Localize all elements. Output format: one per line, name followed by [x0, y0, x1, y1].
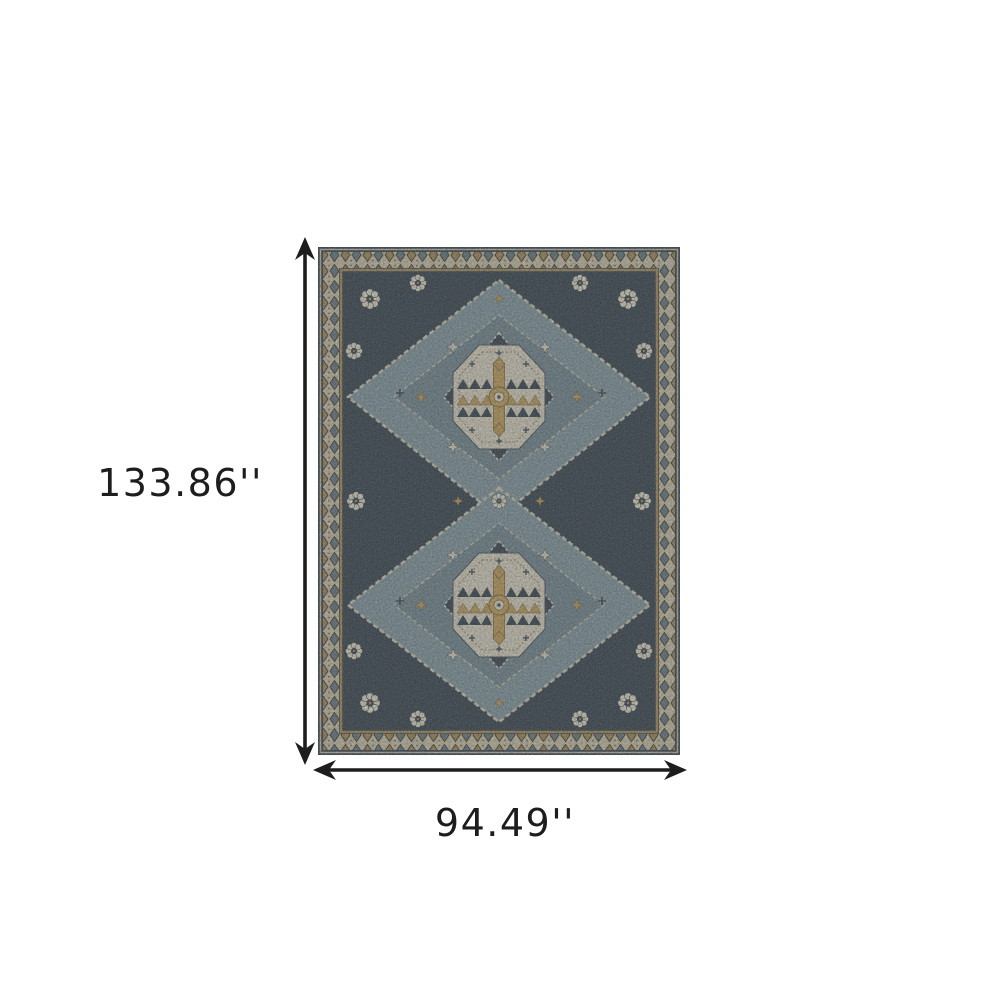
height-dimension-label: 133.86'': [40, 461, 320, 505]
width-dimension-label: 94.49'': [360, 801, 650, 845]
product-dimension-figure: 133.86'' 94.49'': [0, 0, 1000, 1000]
horizontal-dimension-arrow-icon: [313, 760, 687, 780]
rug-image: [318, 247, 680, 755]
